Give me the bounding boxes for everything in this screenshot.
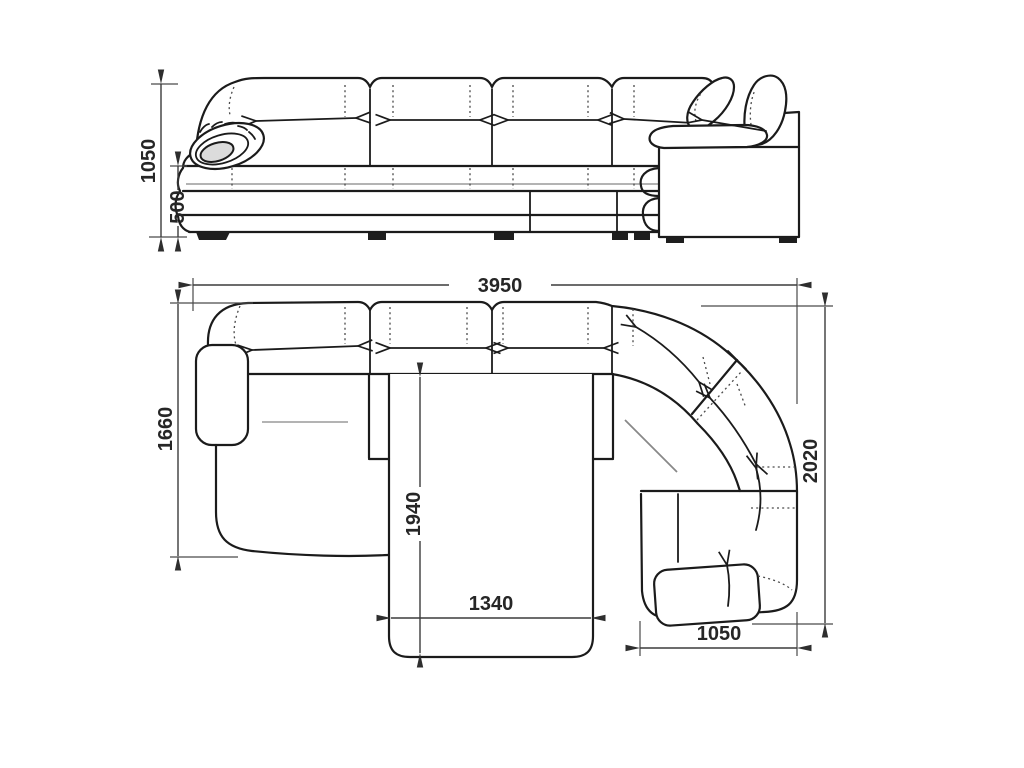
label-left-depth: 1660: [155, 407, 177, 452]
drawing-canvas: 1050 500: [0, 0, 1024, 768]
dimension-seat-height: 500: [167, 166, 189, 237]
front-elevation-view: 1050 500: [138, 76, 799, 243]
elevation-corner-section: [650, 76, 799, 243]
label-bed-extension: 1940: [403, 492, 425, 537]
armrest-scroll: [185, 115, 270, 177]
label-seat-height: 500: [167, 190, 189, 223]
elevation-backrest: [196, 78, 713, 166]
elevation-feet: [196, 232, 650, 240]
label-bed-width: 1340: [469, 593, 514, 615]
label-right-depth: 2020: [800, 439, 822, 484]
sofa-dimension-drawing: 1050 500: [0, 0, 1024, 768]
plan-corner-seat: [625, 420, 797, 627]
plan-ottoman-cushion: [653, 563, 761, 626]
plan-armrest: [196, 345, 248, 445]
top-plan-view: 3950 1660 1940 1340 1050 2020: [155, 275, 833, 657]
label-total-height: 1050: [138, 139, 160, 184]
label-total-width: 3950: [478, 275, 523, 297]
elevation-base: [176, 151, 662, 232]
label-corner-section-width: 1050: [697, 623, 742, 645]
